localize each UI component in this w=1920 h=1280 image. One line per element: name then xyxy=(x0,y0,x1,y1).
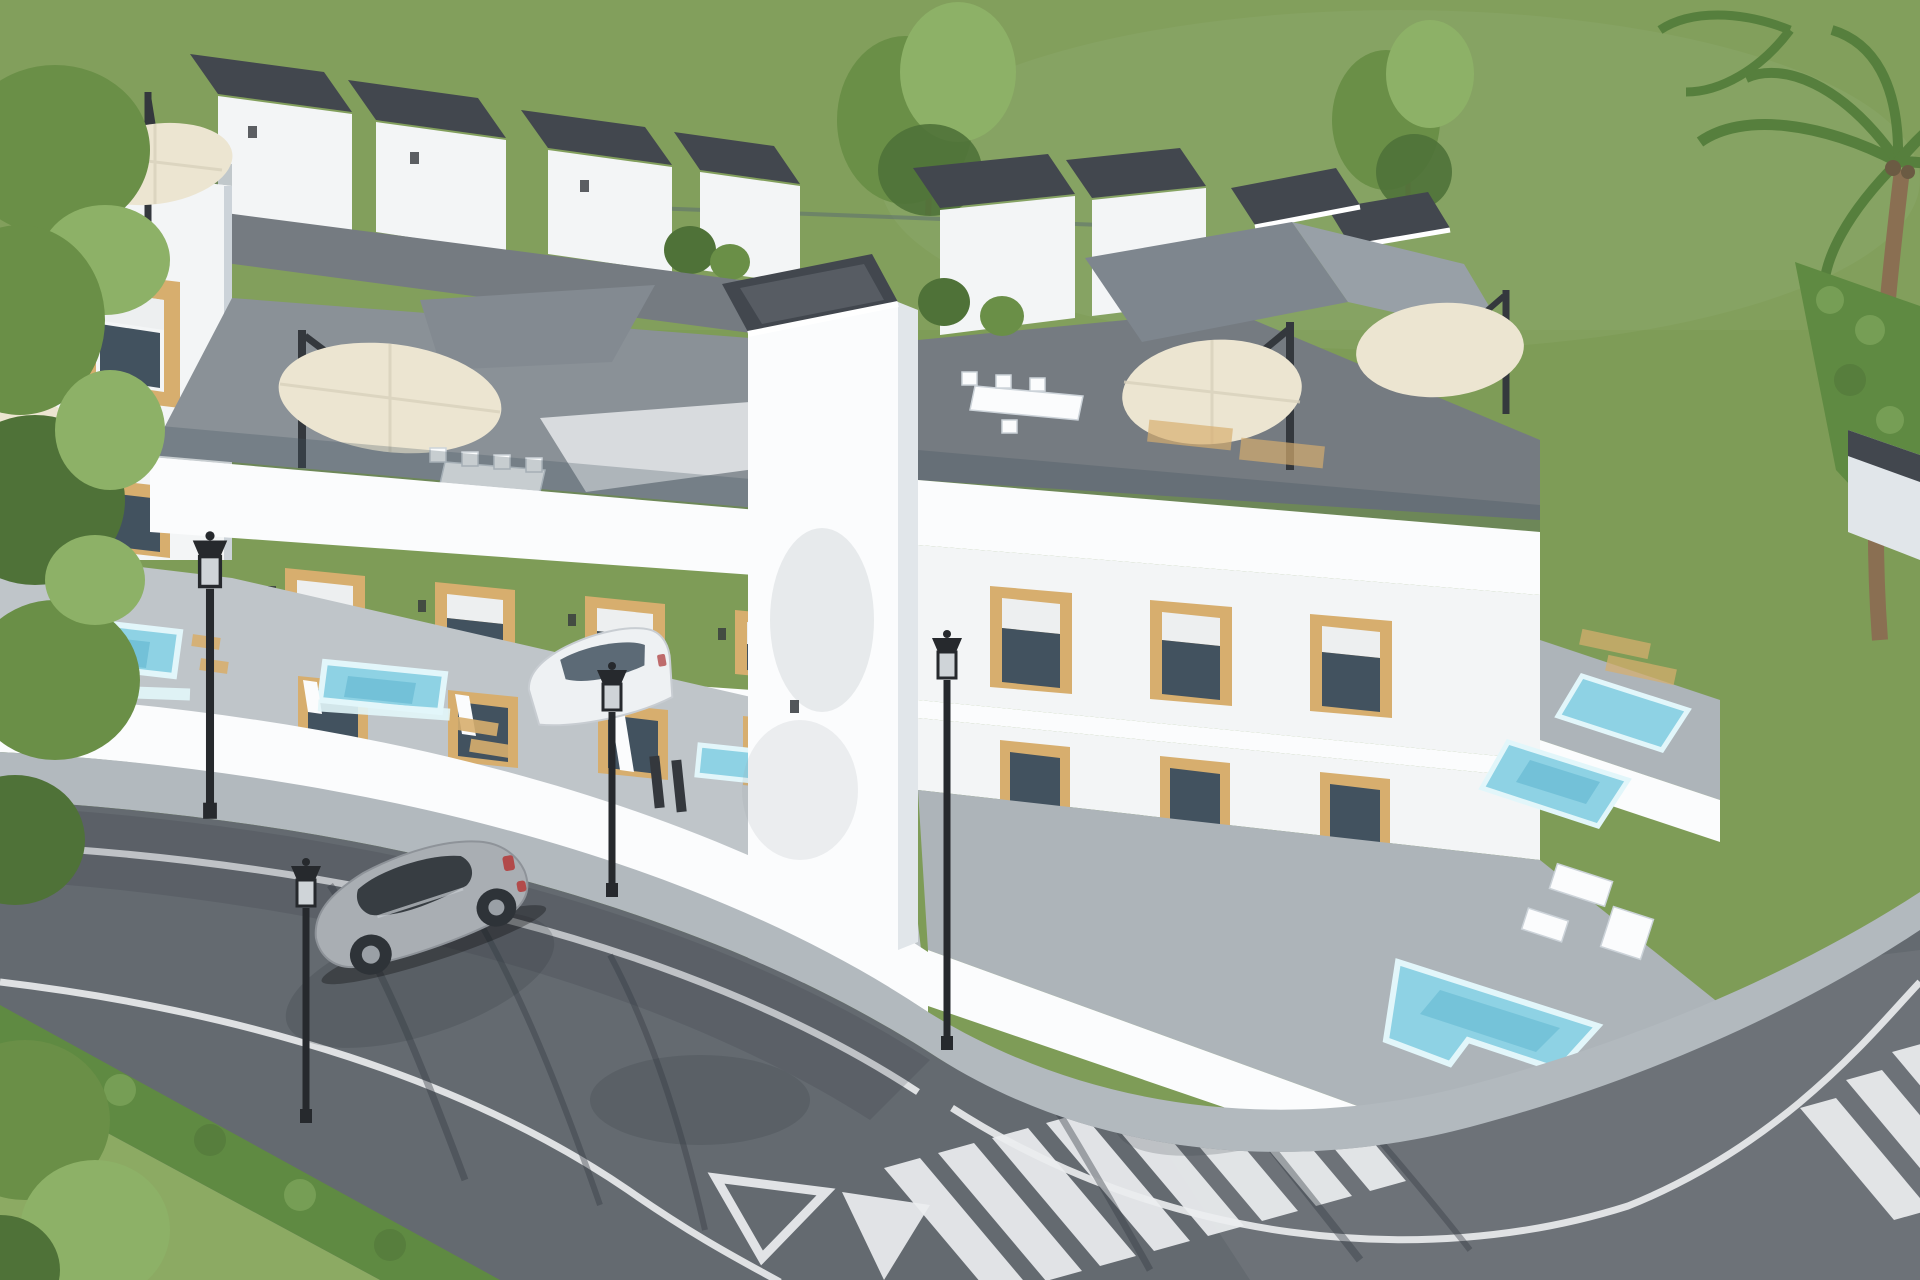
corner-tower xyxy=(722,254,918,1002)
architectural-render-stage xyxy=(0,0,1920,1280)
render-scene xyxy=(0,0,1920,1280)
facade-window xyxy=(1150,600,1232,706)
facade-window xyxy=(1310,614,1392,718)
facade-window xyxy=(990,586,1072,694)
